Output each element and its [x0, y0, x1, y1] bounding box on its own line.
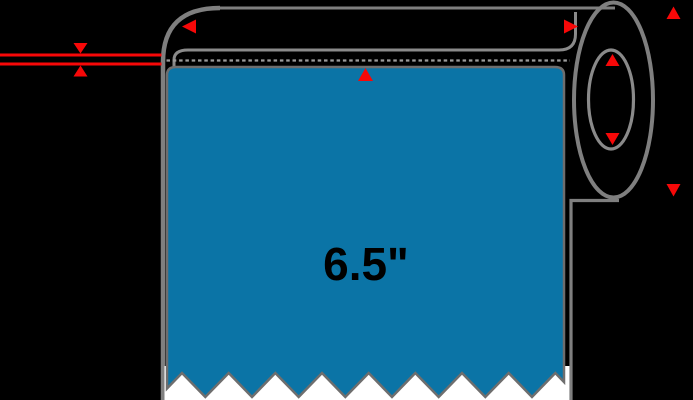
liner-right-edge	[571, 201, 619, 400]
arrow-up-icon	[74, 66, 88, 77]
arrow-down-icon	[74, 43, 88, 54]
arrow-up-icon	[667, 7, 681, 20]
arrow-up-icon	[606, 54, 620, 66]
arrow-left-icon	[182, 20, 196, 34]
label-sheet	[167, 67, 564, 397]
arrow-down-icon	[606, 133, 620, 145]
label-roll-diagram: 1" 6.5"	[0, 0, 693, 400]
diagram-canvas: 1" 6.5"	[0, 0, 693, 400]
label-width-label: 6.5"	[323, 238, 409, 290]
arrow-down-icon	[667, 184, 681, 197]
core-diameter-label: 1"	[589, 74, 632, 121]
